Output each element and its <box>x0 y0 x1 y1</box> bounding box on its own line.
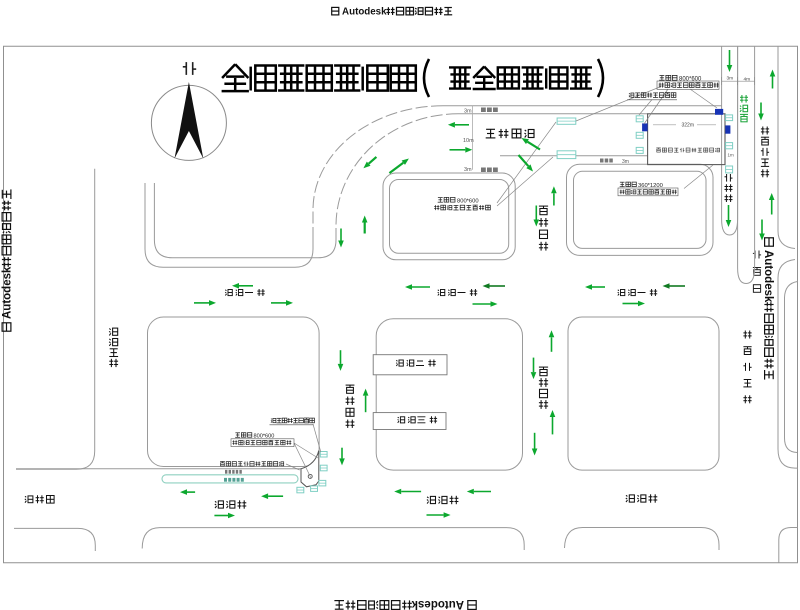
svg-text:4m: 4m <box>744 77 751 83</box>
svg-text:800*600: 800*600 <box>457 199 479 205</box>
svg-text:Autodesk: Autodesk <box>411 598 464 610</box>
svg-text:3m: 3m <box>464 109 472 115</box>
svg-text:3m: 3m <box>727 76 734 82</box>
svg-text:Autodesk: Autodesk <box>2 266 14 319</box>
svg-text:Autodesk: Autodesk <box>342 7 387 18</box>
svg-text:1m: 1m <box>728 153 735 158</box>
svg-text:3m: 3m <box>464 167 472 173</box>
svg-text:Autodesk: Autodesk <box>762 250 774 303</box>
svg-text:322m: 322m <box>682 123 695 129</box>
svg-text:800*600: 800*600 <box>679 77 702 83</box>
svg-text:10m: 10m <box>463 138 474 144</box>
